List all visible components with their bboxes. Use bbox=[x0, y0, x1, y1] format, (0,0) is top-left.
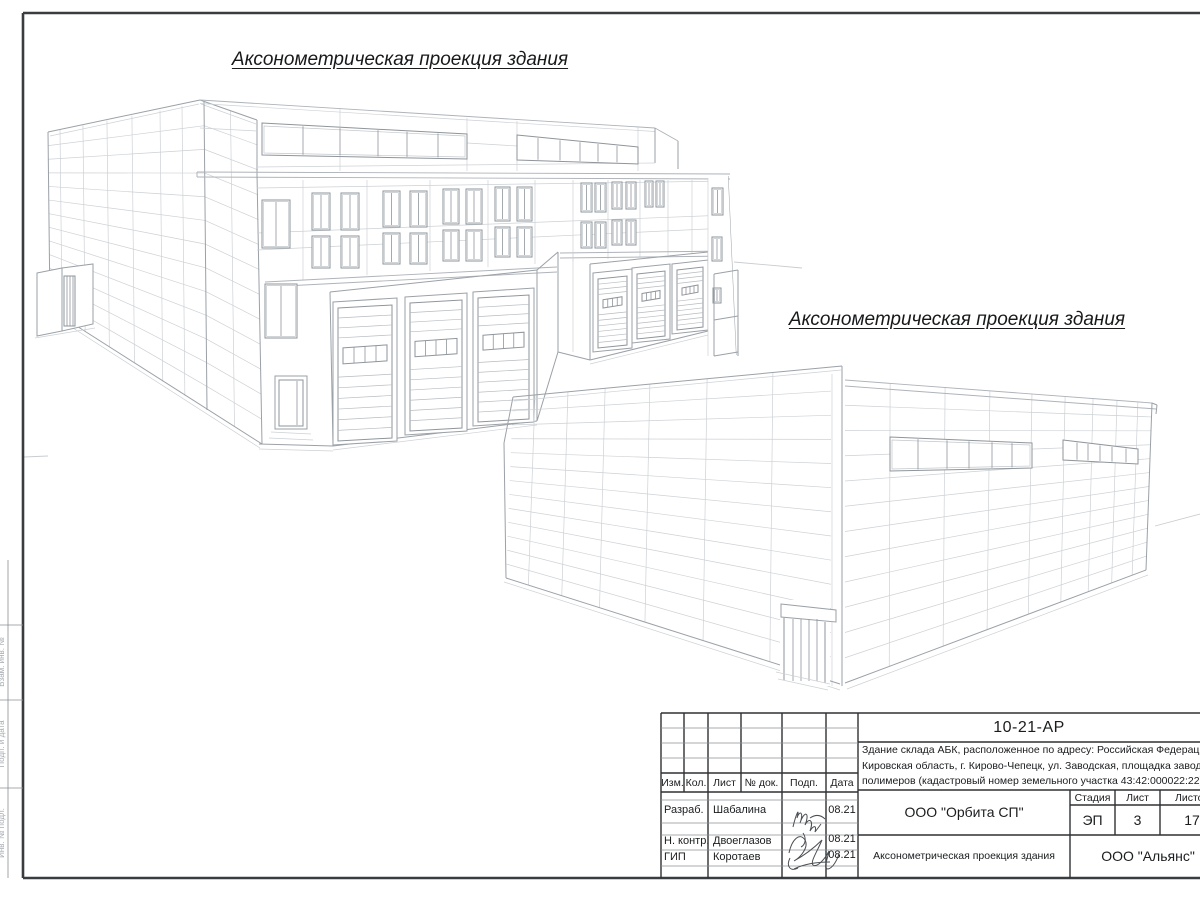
titleblock-description: Здание склада АБК, расположенное по адре… bbox=[862, 743, 1200, 790]
view2-title: Аксонометрическая проекция здания bbox=[707, 309, 1200, 331]
sheet-label: Лист bbox=[1115, 790, 1160, 805]
description-line: Здание склада АБК, расположенное по адре… bbox=[862, 743, 1200, 759]
titleblock-developer: ООО "Орбита СП" bbox=[858, 790, 1070, 835]
stage-value: ЭП bbox=[1070, 805, 1115, 835]
titleblock-company: ООО "Альянс" bbox=[1070, 835, 1200, 878]
row-name: Коротаев bbox=[713, 851, 761, 863]
row-role: Разраб. bbox=[664, 804, 704, 816]
col-header-data: Дата bbox=[826, 774, 858, 792]
svg-text:Инв. № подл.: Инв. № подл. bbox=[0, 808, 6, 858]
sheets-label: Листов bbox=[1160, 790, 1200, 805]
col-header-izm: Изм. bbox=[661, 774, 684, 792]
col-header-podp: Подп. bbox=[782, 774, 826, 792]
row-role: Н. контр. bbox=[664, 835, 709, 847]
col-header-doc: № док. bbox=[741, 774, 782, 792]
row-name: Двоеглазов bbox=[713, 835, 771, 847]
sheets-total: 17 bbox=[1160, 805, 1200, 835]
description-line: полимеров (кадастровый номер земельного … bbox=[862, 774, 1200, 790]
col-header-list: Лист bbox=[708, 774, 741, 792]
titleblock-drawing-title: Аксонометрическая проекция здания bbox=[858, 835, 1070, 878]
svg-text:Взам. инв. №: Взам. инв. № bbox=[0, 637, 6, 687]
row-role: ГИП bbox=[664, 851, 686, 863]
col-header-kol: Кол. bbox=[684, 774, 708, 792]
row-name: Шабалина bbox=[713, 804, 766, 816]
svg-text:Подп. и дата: Подп. и дата bbox=[0, 720, 6, 768]
sheet-number: 3 bbox=[1115, 805, 1160, 835]
row-date: 08.21 bbox=[826, 833, 858, 845]
drawing-sheet: Взам. инв. №Подп. и датаИнв. № подл. Акс… bbox=[0, 0, 1200, 900]
view1-title: Аксонометрическая проекция здания bbox=[150, 49, 650, 71]
description-line: Кировская область, г. Кирово-Чепецк, ул.… bbox=[862, 759, 1200, 775]
stage-label: Стадия bbox=[1070, 790, 1115, 805]
row-date: 08.21 bbox=[826, 804, 858, 816]
titleblock-doc-number: 10-21-АР bbox=[858, 713, 1200, 742]
row-date: 08.21 bbox=[826, 849, 858, 861]
